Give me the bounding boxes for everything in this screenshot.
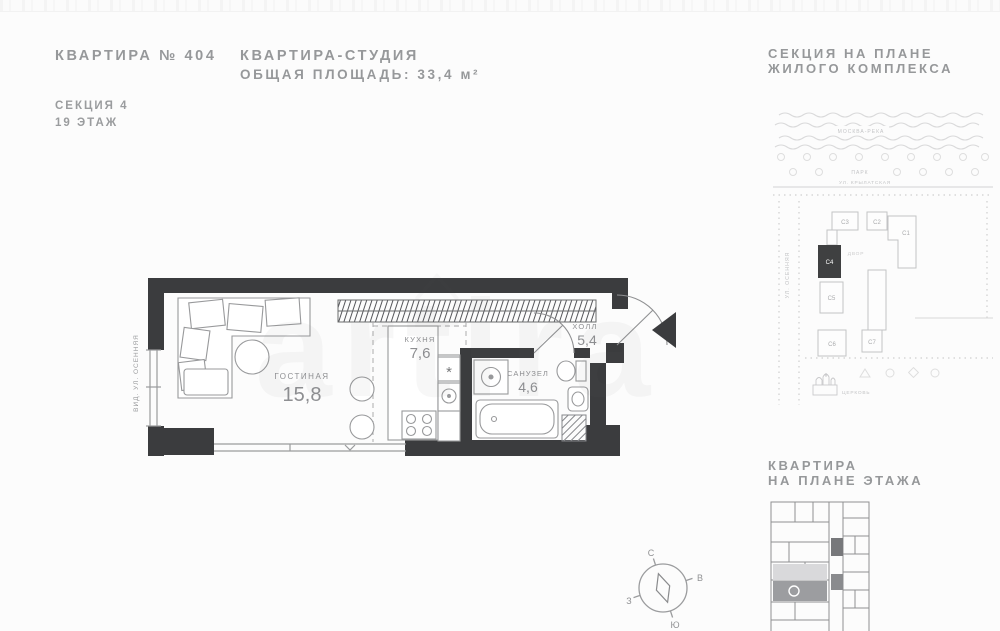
compass-circle — [639, 564, 687, 612]
svg-text:С4: С4 — [826, 260, 834, 266]
compass-west: З — [626, 596, 631, 606]
svg-text:С5: С5 — [828, 296, 836, 302]
page: artira ⌂ КВАРТИРА № 404 СЕКЦИЯ 4 19 ЭТАЖ… — [0, 0, 1000, 631]
living-room-label: ГОСТИНАЯ — [274, 372, 329, 381]
elevator-core — [831, 538, 843, 556]
compass-north: С — [648, 548, 655, 558]
entrance-arrow-icon — [652, 312, 676, 348]
toilet — [576, 361, 586, 381]
highlighted-apartment — [773, 581, 827, 601]
compass-east: В — [697, 573, 703, 583]
adjacent-unit-shade — [773, 564, 827, 580]
apartment-number-title: КВАРТИРА № 404 — [55, 48, 217, 64]
fridge-marker: * — [446, 364, 452, 381]
shower-corner — [562, 415, 586, 441]
window-bottom — [214, 444, 406, 451]
building-stylobate — [868, 270, 886, 330]
church-label: ЦЕРКОВЬ — [842, 390, 870, 396]
compass-ticks — [634, 559, 693, 618]
window-left — [146, 350, 161, 426]
stool — [350, 377, 374, 401]
bathroom-area: 4,6 — [518, 379, 538, 395]
svg-text:С2: С2 — [873, 220, 881, 226]
svg-text:С1: С1 — [902, 231, 910, 237]
floor-plan-thumbnail — [765, 500, 965, 631]
church-icon — [813, 373, 837, 395]
compass-labels: С В Ю З — [626, 548, 703, 630]
building-c1 — [888, 216, 916, 268]
bathroom-label: САНУЗЕЛ — [507, 369, 549, 378]
park-label: ПАРК — [851, 170, 868, 176]
hatched-band — [338, 300, 596, 322]
compass: С В Ю З — [625, 548, 715, 631]
floor-plan-panel-title: КВАРТИРА НА ПЛАНЕ ЭТАЖА — [768, 458, 923, 488]
svg-text:С3: С3 — [841, 220, 849, 226]
compass-needle — [656, 574, 669, 603]
apartment-type-title: КВАРТИРА-СТУДИЯ — [240, 48, 419, 64]
svg-text:С7: С7 — [868, 340, 876, 346]
street-top-label: УЛ. КРЫЛАТСКАЯ — [839, 180, 891, 186]
coffee-table — [235, 340, 269, 374]
courtyard-label: ДВОР — [848, 251, 864, 257]
park-trees — [778, 154, 989, 176]
site-plan-title: СЕКЦИЯ НА ПЛАНЕ ЖИЛОГО КОМПЛЕКСА — [768, 46, 953, 76]
stool — [350, 415, 374, 439]
river-label: МОСКВА-РЕКА — [838, 129, 885, 135]
watermark-house-icon: ⌂ — [408, 240, 466, 350]
compass-south: Ю — [670, 620, 679, 630]
hall-label: ХОЛЛ — [572, 322, 597, 331]
hall-area: 5,4 — [577, 332, 597, 348]
site-plan-map: МОСКВА-РЕКА ПАРК УЛ. КРЫЛАТСКАЯ УЛ. ОСЕН… — [765, 105, 1000, 415]
total-area-label: ОБЩАЯ ПЛОЩАДЬ: 33,4 м² — [240, 67, 480, 82]
svg-text:С6: С6 — [828, 342, 836, 348]
stair-core — [831, 574, 843, 590]
street-left-label: УЛ. ОСЕННЯЯ — [785, 252, 791, 299]
floor-label: 19 ЭТАЖ — [55, 115, 129, 132]
landscape-glyphs — [860, 368, 939, 378]
window-open-mark — [345, 445, 355, 450]
street-view-label: ВИД. УЛ. ОСЕННЯЯ — [133, 334, 140, 412]
stove — [402, 411, 436, 439]
section-label: СЕКЦИЯ 4 — [55, 98, 129, 115]
living-room-area: 15,8 — [283, 384, 322, 406]
cropped-plan-edge — [0, 0, 1000, 12]
